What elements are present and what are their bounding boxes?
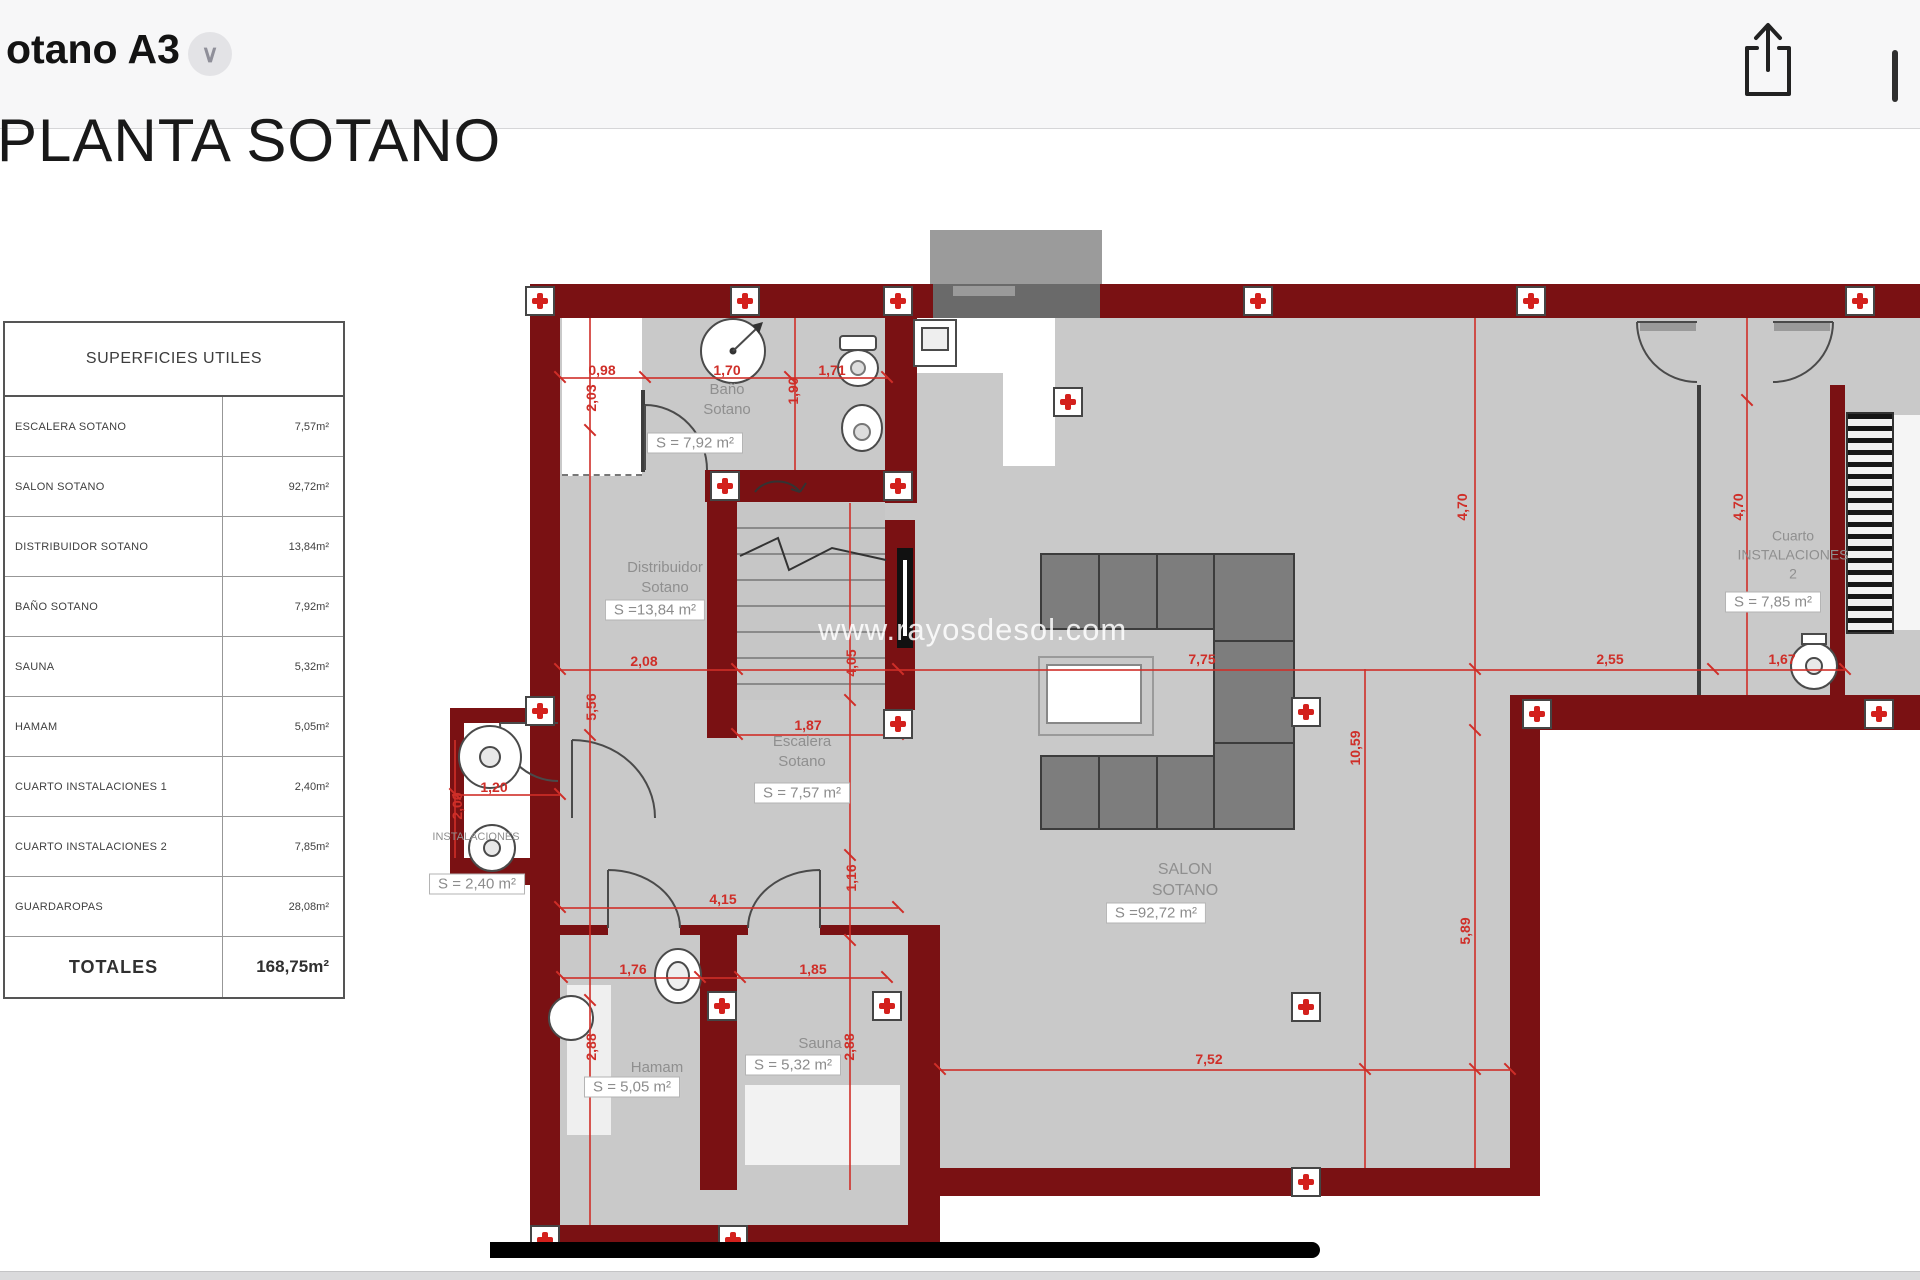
cross-icon [1298,999,1314,1015]
cross-icon [532,703,548,719]
column-marker [1522,699,1552,729]
cross-icon [1250,293,1266,309]
dimension-label: 5,89 [1456,901,1474,961]
room-label: SALONSOTANO [1152,859,1218,901]
dimension-label: 1,76 [603,960,663,978]
cross-icon [890,478,906,494]
dimension-label: 2,08 [614,652,674,670]
column-marker [872,991,902,1021]
room-label-line: Distribuidor [627,558,703,578]
cross-icon [890,716,906,732]
dimension-label: 4,15 [693,890,753,908]
room-label: BañoSotano [703,380,751,420]
room-label-line: Sauna [798,1034,841,1054]
cross-icon [1852,293,1868,309]
room-area-tag: S = 7,57 m² [754,783,850,804]
cross-icon [1871,706,1887,722]
room-label: CuartoINSTALACIONES2 [1738,527,1849,584]
door-arc-sauna [748,870,820,928]
stairs-break-line [740,538,886,570]
room-label-line: SALON [1152,859,1218,880]
column-marker [883,286,913,316]
column-marker [707,991,737,1021]
room-label-line: Escalera [773,732,831,752]
scale-bar [490,1242,1320,1258]
toilet-tank [840,336,876,350]
room-area-tag: S = 7,85 m² [1725,592,1821,613]
column-marker [1845,286,1875,316]
cross-icon [737,293,753,309]
room-area-tag: S = 2,40 m² [429,874,525,895]
room-label-line: Baño [703,380,751,400]
column-marker [1291,992,1321,1022]
column-marker [1053,387,1083,417]
cross-icon [1523,293,1539,309]
room-label: DistribuidorSotano [627,558,703,598]
bottom-edge-strip [0,1271,1920,1280]
column-marker [1516,286,1546,316]
column-marker [1291,1167,1321,1197]
cross-icon [532,293,548,309]
cross-icon [714,998,730,1014]
room-label-line: Hamam [631,1058,684,1078]
column-marker [1864,699,1894,729]
watermark: www.rayosdesol.com [818,612,1127,648]
dimension-label: 2,88 [582,1017,600,1077]
dimension-label: 1,71 [802,361,862,379]
room-area-tag: S =92,72 m² [1106,903,1206,924]
room-label: Hamam [631,1058,684,1078]
room-area-tag: S = 7,92 m² [647,433,743,454]
stairs-direction-arrow [755,482,806,493]
door-arc-distribuidor [572,740,655,818]
dimension-label: 2,88 [840,1017,858,1077]
room-label: INSTALACIONES [432,829,519,845]
cross-icon [717,478,733,494]
column-marker [525,286,555,316]
dimension-label: 0,98 [572,361,632,379]
room-label-line: INSTALACIONES [1738,546,1849,565]
dimension-label: 7,75 [1172,650,1232,668]
room-label: Sauna [798,1034,841,1054]
dimension-line [849,503,851,1190]
column-marker [883,709,913,739]
room-label-line: Sotano [627,578,703,598]
room-label-line: Cuarto [1738,527,1849,546]
column-marker [710,471,740,501]
cross-icon [1529,706,1545,722]
dimension-label: 1,16 [842,848,860,908]
room-label-line: Sotano [703,400,751,420]
column-marker [525,696,555,726]
dimension-line [560,669,1845,671]
dimension-line [1364,669,1366,1168]
dimension-label: 2,00 [448,776,466,836]
room-area-tag: S = 5,32 m² [745,1055,841,1076]
cross-icon [1060,394,1076,410]
cross-icon [1298,704,1314,720]
cross-icon [1298,1174,1314,1190]
dimension-label: 2,55 [1580,650,1640,668]
file-preview-screen: otano A3 ∨ PLANTA SOTANO SUPERFICIES UTI… [0,0,1920,1280]
column-marker [1291,697,1321,727]
room-area-tag: S = 5,05 m² [584,1077,680,1098]
column-marker [883,471,913,501]
dimension-label: 1,70 [697,361,757,379]
room-area-tag: S =13,84 m² [605,600,705,621]
column-marker [1243,286,1273,316]
dimension-label: 4,70 [1453,477,1471,537]
dimension-label: 10,59 [1346,718,1364,778]
cross-icon [879,998,895,1014]
dimension-label: 1,85 [783,960,843,978]
dimension-line [940,1069,1510,1071]
dimension-label: 1,90 [784,361,802,421]
room-label: EscaleraSotano [773,732,831,772]
dimension-label: 7,52 [1179,1050,1239,1068]
floor-plan: 0,981,701,712,031,902,087,752,551,675,56… [0,0,1920,1280]
room-label-line: Sotano [773,752,831,772]
room-label-line: INSTALACIONES [432,829,519,845]
dimension-line [1474,318,1476,1168]
dimension-label: 1,67 [1752,650,1812,668]
cross-icon [890,293,906,309]
room-label-line: SOTANO [1152,880,1218,901]
column-marker [730,286,760,316]
room-label-line: 2 [1738,565,1849,584]
dimension-label: 5,56 [582,677,600,737]
door-arc-hamam [608,870,680,928]
dimension-label: 1,20 [464,778,524,796]
dimension-label: 2,03 [582,368,600,428]
